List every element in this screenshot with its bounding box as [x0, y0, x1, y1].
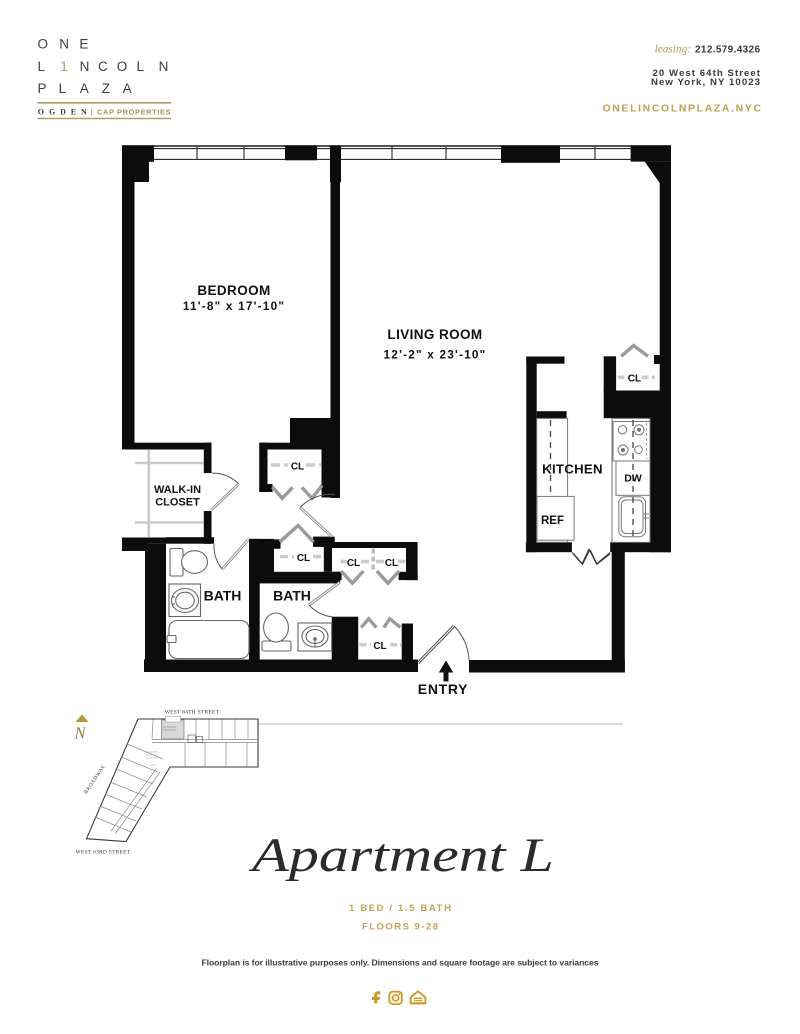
svg-text:CL: CL — [385, 558, 398, 569]
svg-text:ENTRY: ENTRY — [418, 681, 468, 697]
svg-text:C: C — [98, 59, 108, 74]
svg-text:BROADWAY: BROADWAY — [83, 764, 107, 796]
svg-text:CL: CL — [347, 558, 360, 569]
svg-text:WALK-IN: WALK-IN — [154, 484, 201, 496]
svg-text:DW: DW — [624, 473, 642, 485]
svg-text:WEST 64TH STREET: WEST 64TH STREET — [165, 710, 220, 716]
svg-text:CL: CL — [291, 462, 304, 473]
svg-text:A: A — [123, 81, 132, 96]
svg-text:Apartment L: Apartment L — [249, 829, 554, 882]
svg-text:CL: CL — [297, 553, 310, 564]
svg-text:N: N — [59, 37, 69, 52]
svg-text:1: 1 — [60, 59, 68, 74]
svg-text:E: E — [79, 37, 88, 52]
svg-text:O: O — [117, 59, 128, 74]
svg-text:REF: REF — [541, 515, 564, 527]
svg-text:leasing:: leasing: — [655, 44, 691, 56]
svg-text:KITCHEN: KITCHEN — [542, 462, 603, 477]
svg-text:O: O — [38, 37, 49, 52]
svg-text:P: P — [38, 81, 47, 96]
svg-text:New York, NY 10023: New York, NY 10023 — [651, 77, 760, 88]
svg-text:CAP PROPERTIES: CAP PROPERTIES — [97, 107, 171, 116]
svg-text:CL: CL — [628, 373, 641, 384]
svg-text:ONELINCOLNPLAZA.NYC: ONELINCOLNPLAZA.NYC — [603, 104, 762, 115]
svg-text:11'-8" x 17'-10": 11'-8" x 17'-10" — [183, 299, 285, 313]
svg-text:Z: Z — [102, 81, 110, 96]
svg-text:212.579.4326: 212.579.4326 — [695, 45, 760, 56]
svg-text:WEST 63RD STREET: WEST 63RD STREET — [76, 850, 131, 856]
svg-text:N: N — [74, 724, 87, 743]
svg-text:1 BED / 1.5 BATH: 1 BED / 1.5 BATH — [349, 903, 451, 914]
svg-text:A: A — [80, 81, 89, 96]
svg-text:OGDEN: OGDEN — [38, 108, 87, 117]
svg-text:L: L — [38, 59, 46, 74]
svg-text:L: L — [137, 59, 145, 74]
svg-text:N: N — [80, 59, 90, 74]
svg-text:LIVING ROOM: LIVING ROOM — [387, 327, 482, 342]
svg-text:|: | — [91, 106, 93, 116]
svg-text:N: N — [159, 59, 169, 74]
svg-text:BATH: BATH — [204, 588, 242, 604]
svg-text:FLOORS 9-28: FLOORS 9-28 — [362, 922, 438, 933]
svg-text:CLOSET: CLOSET — [155, 497, 200, 509]
svg-text:12'-2" x 23'-10": 12'-2" x 23'-10" — [384, 348, 487, 362]
svg-text:BATH: BATH — [273, 588, 311, 604]
svg-text:Floorplan is for illustrative: Floorplan is for illustrative purposes o… — [202, 958, 599, 968]
svg-text:CL: CL — [373, 641, 386, 652]
svg-text:L: L — [59, 81, 67, 96]
svg-text:BEDROOM: BEDROOM — [197, 283, 270, 298]
